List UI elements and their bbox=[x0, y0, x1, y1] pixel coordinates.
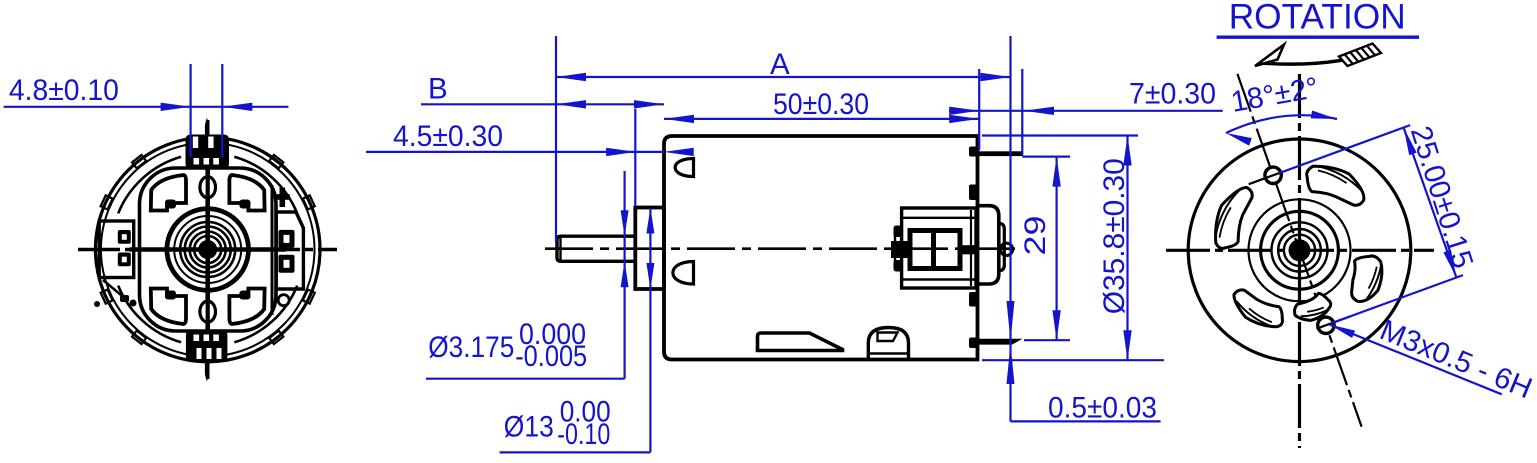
svg-text:B: B bbox=[428, 73, 448, 106]
svg-text:Ø3.175: Ø3.175 bbox=[428, 331, 514, 364]
svg-text:-0.10: -0.10 bbox=[557, 418, 610, 451]
svg-text:50±0.30: 50±0.30 bbox=[773, 88, 869, 121]
svg-text:7±0.30: 7±0.30 bbox=[1129, 78, 1216, 111]
svg-text:Ø13: Ø13 bbox=[504, 411, 554, 444]
svg-text:A: A bbox=[770, 48, 790, 81]
svg-text:-0.005: -0.005 bbox=[515, 340, 587, 373]
svg-text:4.5±0.30: 4.5±0.30 bbox=[393, 120, 503, 153]
svg-text:0.5±0.03: 0.5±0.03 bbox=[1048, 392, 1157, 425]
svg-text:4.8±0.10: 4.8±0.10 bbox=[9, 74, 119, 107]
svg-text:29: 29 bbox=[1019, 216, 1052, 256]
svg-text:ROTATION: ROTATION bbox=[1229, 0, 1406, 37]
svg-text:Ø35.8±0.30: Ø35.8±0.30 bbox=[1098, 158, 1131, 314]
